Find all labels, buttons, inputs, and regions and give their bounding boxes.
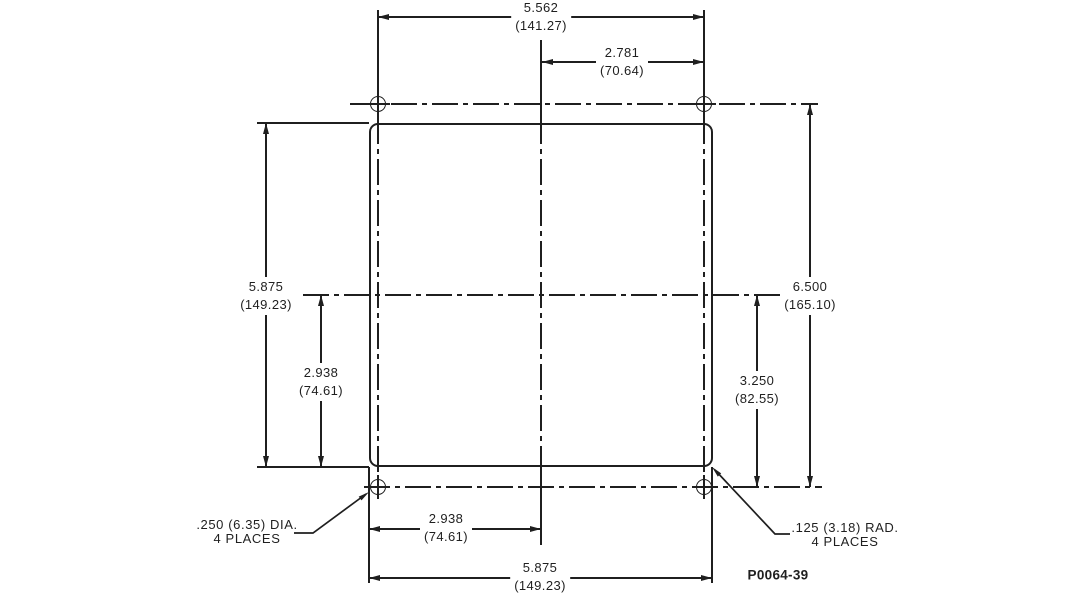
dim-left-height-mm: (149.23) xyxy=(240,296,292,314)
arrow-right-half-bottom xyxy=(754,476,760,487)
arrow-right-height-top xyxy=(807,104,813,115)
note-radius-line1: .125 (3.18) RAD. xyxy=(791,521,898,535)
dim-text-top-width: 5.562 (141.27) xyxy=(511,0,571,36)
dim-top-half-mm: (70.64) xyxy=(600,62,644,80)
dim-text-bottom-half: 2.938 (74.61) xyxy=(420,509,472,547)
part-number: P0064-39 xyxy=(748,568,809,583)
dim-right-height-mm: (165.10) xyxy=(784,296,836,314)
arrow-left-half-top xyxy=(318,295,324,306)
extension-line-bottom-left xyxy=(257,466,369,468)
dim-text-bottom-width: 5.875 (149.23) xyxy=(510,558,570,596)
arrow-right-half-top xyxy=(754,295,760,306)
dim-text-left-height: 5.875 (149.23) xyxy=(236,277,296,315)
dim-top-half-in: 2.781 xyxy=(600,44,644,62)
dim-top-width-in: 5.562 xyxy=(515,0,567,17)
arrow-right-height-bottom xyxy=(807,476,813,487)
mounting-hole-bottom-right xyxy=(696,479,712,495)
dim-right-half-in: 3.250 xyxy=(735,372,779,390)
extension-line-bottom-center xyxy=(540,467,542,545)
dim-left-height-in: 5.875 xyxy=(240,278,292,296)
note-hole-diameter: .250 (6.35) DIA. 4 PLACES xyxy=(196,518,297,546)
dim-right-half-mm: (82.55) xyxy=(735,390,779,408)
dim-bottom-half-in: 2.938 xyxy=(424,510,468,528)
note-hole-line1: .250 (6.35) DIA. xyxy=(196,518,297,532)
mounting-hole-top-left xyxy=(370,96,386,112)
arrow-left-half-bottom xyxy=(318,456,324,467)
dim-bottom-width-in: 5.875 xyxy=(514,559,566,577)
arrow-bottom-half-right xyxy=(530,526,541,532)
arrow-top-width-left xyxy=(378,14,389,20)
centerline-vertical-middle xyxy=(540,118,542,467)
arrow-top-width-right xyxy=(693,14,704,20)
arrow-top-half-left xyxy=(542,59,553,65)
centerline-top-holes-row xyxy=(350,103,818,105)
dim-top-width-mm: (141.27) xyxy=(515,17,567,35)
arrow-top-half-right xyxy=(693,59,704,65)
arrow-bottom-half-left xyxy=(369,526,380,532)
extension-line-top-center xyxy=(540,40,542,118)
note-hole-line2: 4 PLACES xyxy=(196,532,297,546)
dim-text-top-half: 2.781 (70.64) xyxy=(596,43,648,81)
mounting-hole-bottom-left xyxy=(370,479,386,495)
dim-left-half-in: 2.938 xyxy=(299,364,343,382)
dim-left-half-mm: (74.61) xyxy=(299,382,343,400)
arrow-left-height-bottom xyxy=(263,456,269,467)
extension-line-top-left xyxy=(257,122,369,124)
note-radius-line2: 4 PLACES xyxy=(791,535,898,549)
mounting-hole-top-right xyxy=(696,96,712,112)
note-corner-radius: .125 (3.18) RAD. 4 PLACES xyxy=(791,521,898,549)
dim-text-left-half: 2.938 (74.61) xyxy=(295,363,347,401)
centerline-left-hole-column xyxy=(377,118,379,496)
dim-right-height-in: 6.500 xyxy=(784,278,836,296)
dim-text-right-half: 3.250 (82.55) xyxy=(731,371,783,409)
arrow-left-height-top xyxy=(263,123,269,134)
dim-text-right-height: 6.500 (165.10) xyxy=(780,277,840,315)
dim-bottom-half-mm: (74.61) xyxy=(424,528,468,546)
arrow-bottom-width-left xyxy=(369,575,380,581)
technical-drawing-canvas: 5.562 (141.27) 2.781 (70.64) 5.875 (149.… xyxy=(0,0,1084,600)
centerline-right-hole-column xyxy=(703,118,705,496)
dim-bottom-width-mm: (149.23) xyxy=(514,577,566,595)
arrow-bottom-width-right xyxy=(701,575,712,581)
